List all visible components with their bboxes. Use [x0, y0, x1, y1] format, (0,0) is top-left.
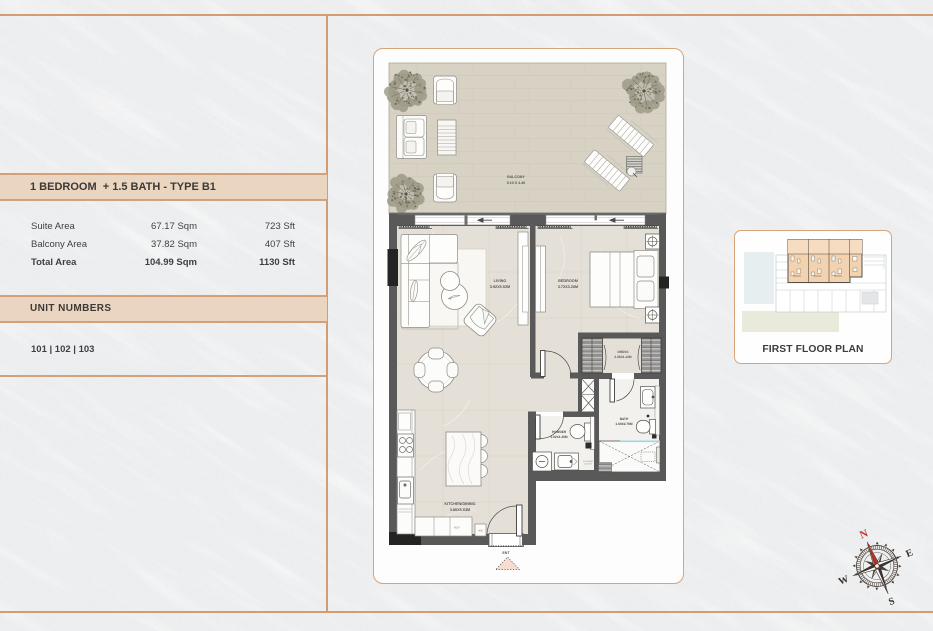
svg-text:N: N — [858, 527, 870, 541]
svg-text:1.60X2.75M: 1.60X2.75M — [615, 422, 633, 426]
svg-text:S: S — [887, 596, 897, 608]
svg-text:3.72X3.20M: 3.72X3.20M — [558, 285, 578, 289]
svg-text:LIVING: LIVING — [494, 279, 507, 283]
svg-text:BALCONY: BALCONY — [507, 175, 525, 179]
svg-text:W: W — [837, 574, 850, 588]
svg-text:9.10 X 4.40: 9.10 X 4.40 — [507, 181, 525, 185]
svg-text:BATH: BATH — [620, 417, 629, 421]
svg-text:1.02X1.45M: 1.02X1.45M — [550, 435, 568, 439]
svg-text:3.80X5.53M: 3.80X5.53M — [450, 508, 470, 512]
svg-text:E: E — [904, 547, 915, 560]
svg-text:3.92X5.52M: 3.92X5.52M — [490, 285, 510, 289]
svg-text:BEDROOM: BEDROOM — [558, 279, 578, 283]
svg-text:DRESS: DRESS — [618, 350, 629, 354]
svg-text:POWDER: POWDER — [552, 430, 567, 434]
svg-text:2.35X1.12M: 2.35X1.12M — [614, 355, 632, 359]
svg-text:CLOSET: CLOSET — [584, 463, 593, 465]
svg-text:REF: REF — [454, 525, 460, 529]
svg-text:WB: WB — [478, 528, 483, 532]
svg-text:KITCHEN/DINING: KITCHEN/DINING — [444, 502, 475, 506]
svg-text:ENT: ENT — [502, 551, 510, 555]
